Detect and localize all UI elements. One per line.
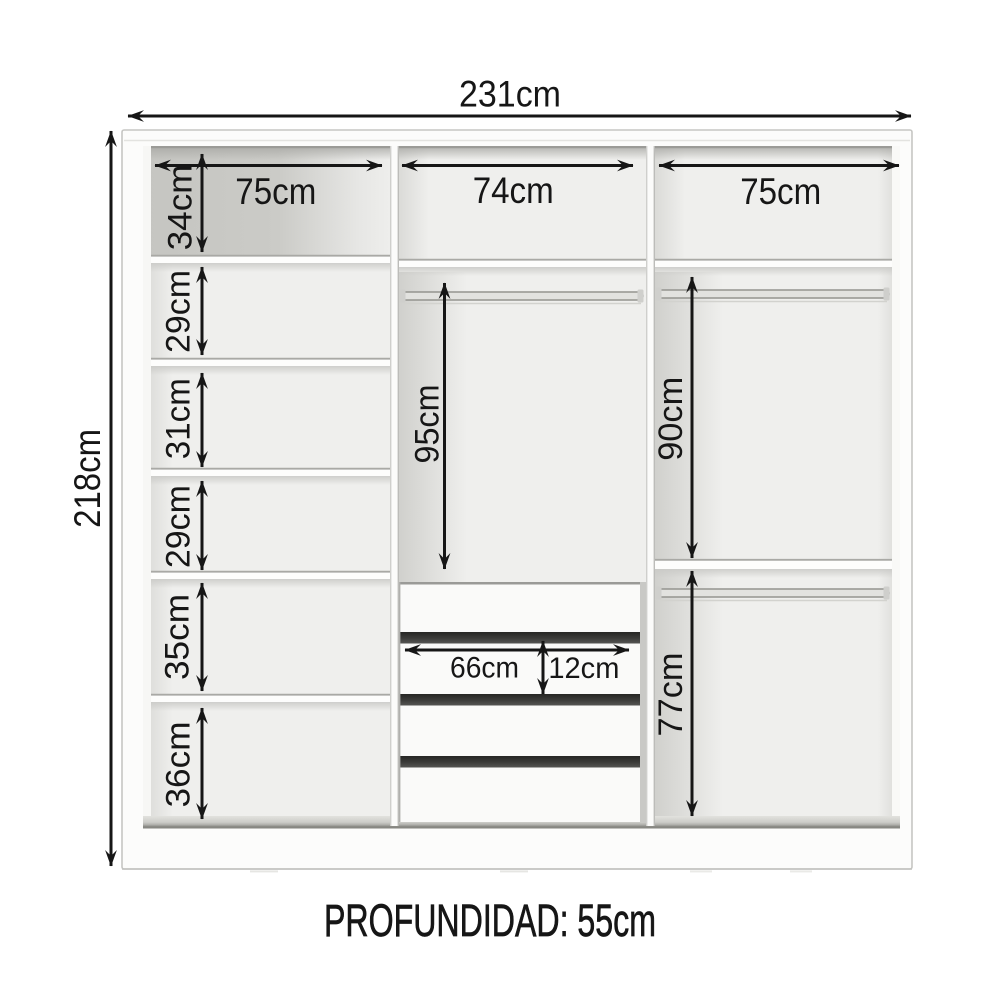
svg-text:218cm: 218cm	[66, 429, 108, 528]
svg-text:90cm: 90cm	[652, 377, 690, 461]
svg-text:231cm: 231cm	[459, 73, 561, 115]
svg-text:77cm: 77cm	[652, 653, 690, 737]
svg-text:36cm: 36cm	[160, 722, 198, 808]
svg-text:35cm: 35cm	[159, 594, 197, 680]
svg-text:66cm: 66cm	[450, 652, 519, 685]
svg-text:12cm: 12cm	[548, 652, 619, 685]
svg-text:34cm: 34cm	[162, 164, 200, 250]
svg-text:74cm: 74cm	[473, 170, 554, 211]
svg-text:29cm: 29cm	[160, 485, 198, 568]
svg-text:75cm: 75cm	[235, 171, 316, 212]
svg-text:95cm: 95cm	[408, 385, 446, 464]
svg-text:29cm: 29cm	[160, 270, 198, 353]
svg-text:75cm: 75cm	[740, 171, 821, 212]
svg-text:31cm: 31cm	[160, 378, 198, 459]
svg-text:PROFUNDIDAD: 55cm: PROFUNDIDAD: 55cm	[324, 895, 656, 946]
